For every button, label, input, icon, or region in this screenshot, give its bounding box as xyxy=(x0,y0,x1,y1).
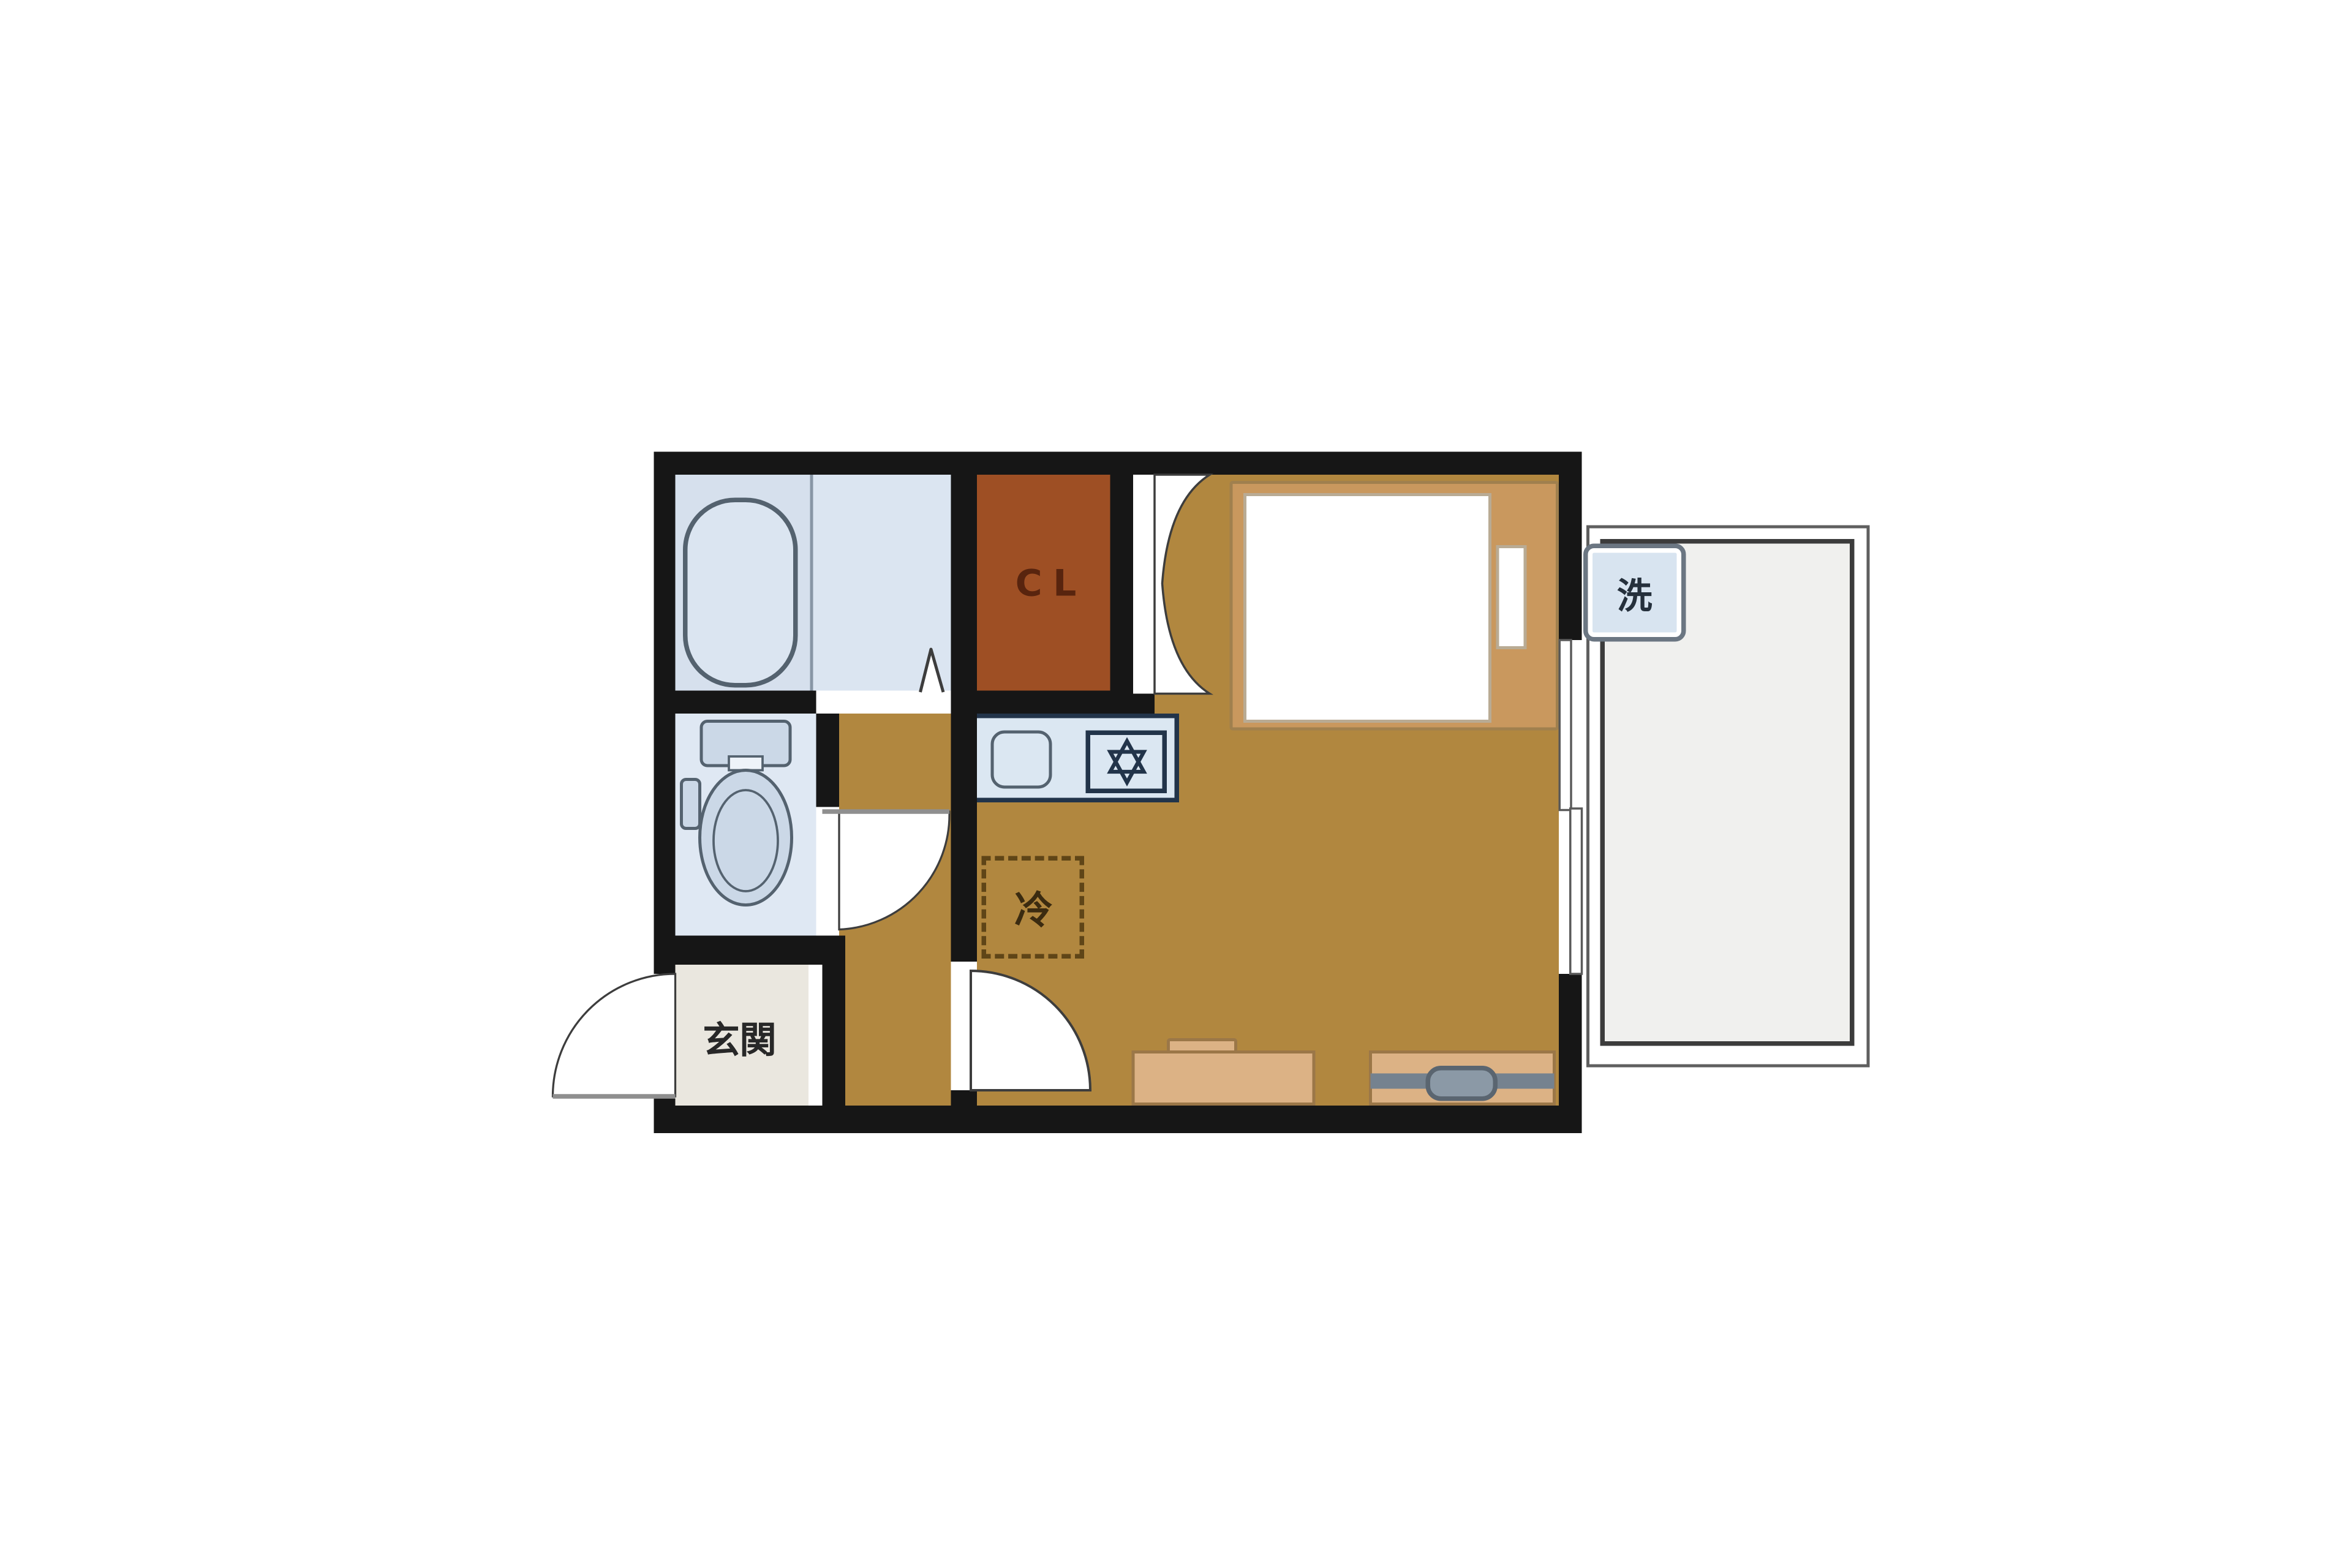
floorplan-page: CL 玄関 冷 洗 xyxy=(0,0,2352,1568)
outer-wall-bottom xyxy=(654,1106,1582,1133)
entrance-label: 玄関 xyxy=(703,1010,777,1064)
closet-door-panels xyxy=(1133,475,1155,694)
wall-under-bathroom xyxy=(676,691,816,714)
entrance-doorway xyxy=(654,974,676,1090)
closet-label: CL xyxy=(1005,562,1087,605)
bathroom-washroom xyxy=(812,475,952,691)
desk-handle xyxy=(1167,1038,1237,1053)
outer-wall-right-lower xyxy=(1559,974,1582,1133)
tv-icon xyxy=(1426,1066,1498,1101)
bathtub-icon xyxy=(683,498,798,688)
bed-mattress xyxy=(1243,493,1491,723)
wall-closet-right xyxy=(1110,452,1134,714)
stove-icon xyxy=(1086,731,1167,794)
wall-bathroom-closet xyxy=(951,452,978,962)
sliding-window-panel-upper xyxy=(1559,640,1571,810)
toilet-doorway xyxy=(816,807,840,936)
wall-hall-stub-bottom xyxy=(951,1090,978,1133)
entrance-step-strip xyxy=(809,965,823,1106)
refrigerator-label: 冷 xyxy=(1014,881,1053,936)
bathroom-doorway xyxy=(816,691,951,714)
outer-wall-right-upper xyxy=(1559,452,1582,641)
desk xyxy=(1132,1050,1316,1106)
mainroom-doorway xyxy=(951,962,978,1090)
wall-under-closet xyxy=(977,691,1155,714)
bed-pillow xyxy=(1496,545,1527,649)
wall-entrance-right xyxy=(823,965,846,1133)
sink-icon xyxy=(991,731,1052,789)
toilet-room xyxy=(676,714,816,936)
sliding-window-panel-lower xyxy=(1570,809,1582,974)
washing-machine-label: 洗 xyxy=(1617,567,1653,619)
wall-toilet-bottom xyxy=(654,936,846,965)
washing-machine: 洗 xyxy=(1583,544,1686,642)
hallway-floor xyxy=(839,714,952,1106)
wall-toilet-right xyxy=(816,714,840,807)
bathroom-divider xyxy=(810,475,813,691)
